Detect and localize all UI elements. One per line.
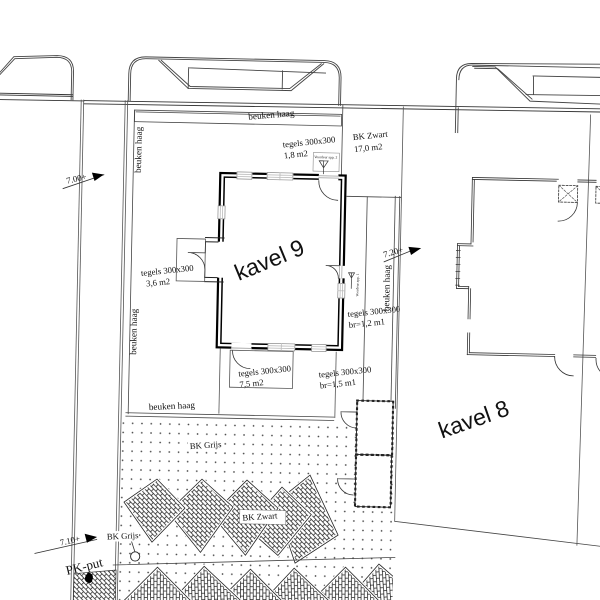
svg-text:beuken haag: beuken haag (128, 308, 139, 355)
svg-text:beuken haag: beuken haag (133, 126, 144, 173)
svg-text:beuken haag: beuken haag (381, 264, 392, 311)
svg-text:Voordeur app. 2: Voordeur app. 2 (314, 155, 337, 159)
svg-text:BK Grijs: BK Grijs (190, 439, 223, 451)
svg-text:BK Grijs: BK Grijs (107, 530, 140, 542)
svg-text:Voordeur app. 1: Voordeur app. 1 (355, 273, 359, 296)
